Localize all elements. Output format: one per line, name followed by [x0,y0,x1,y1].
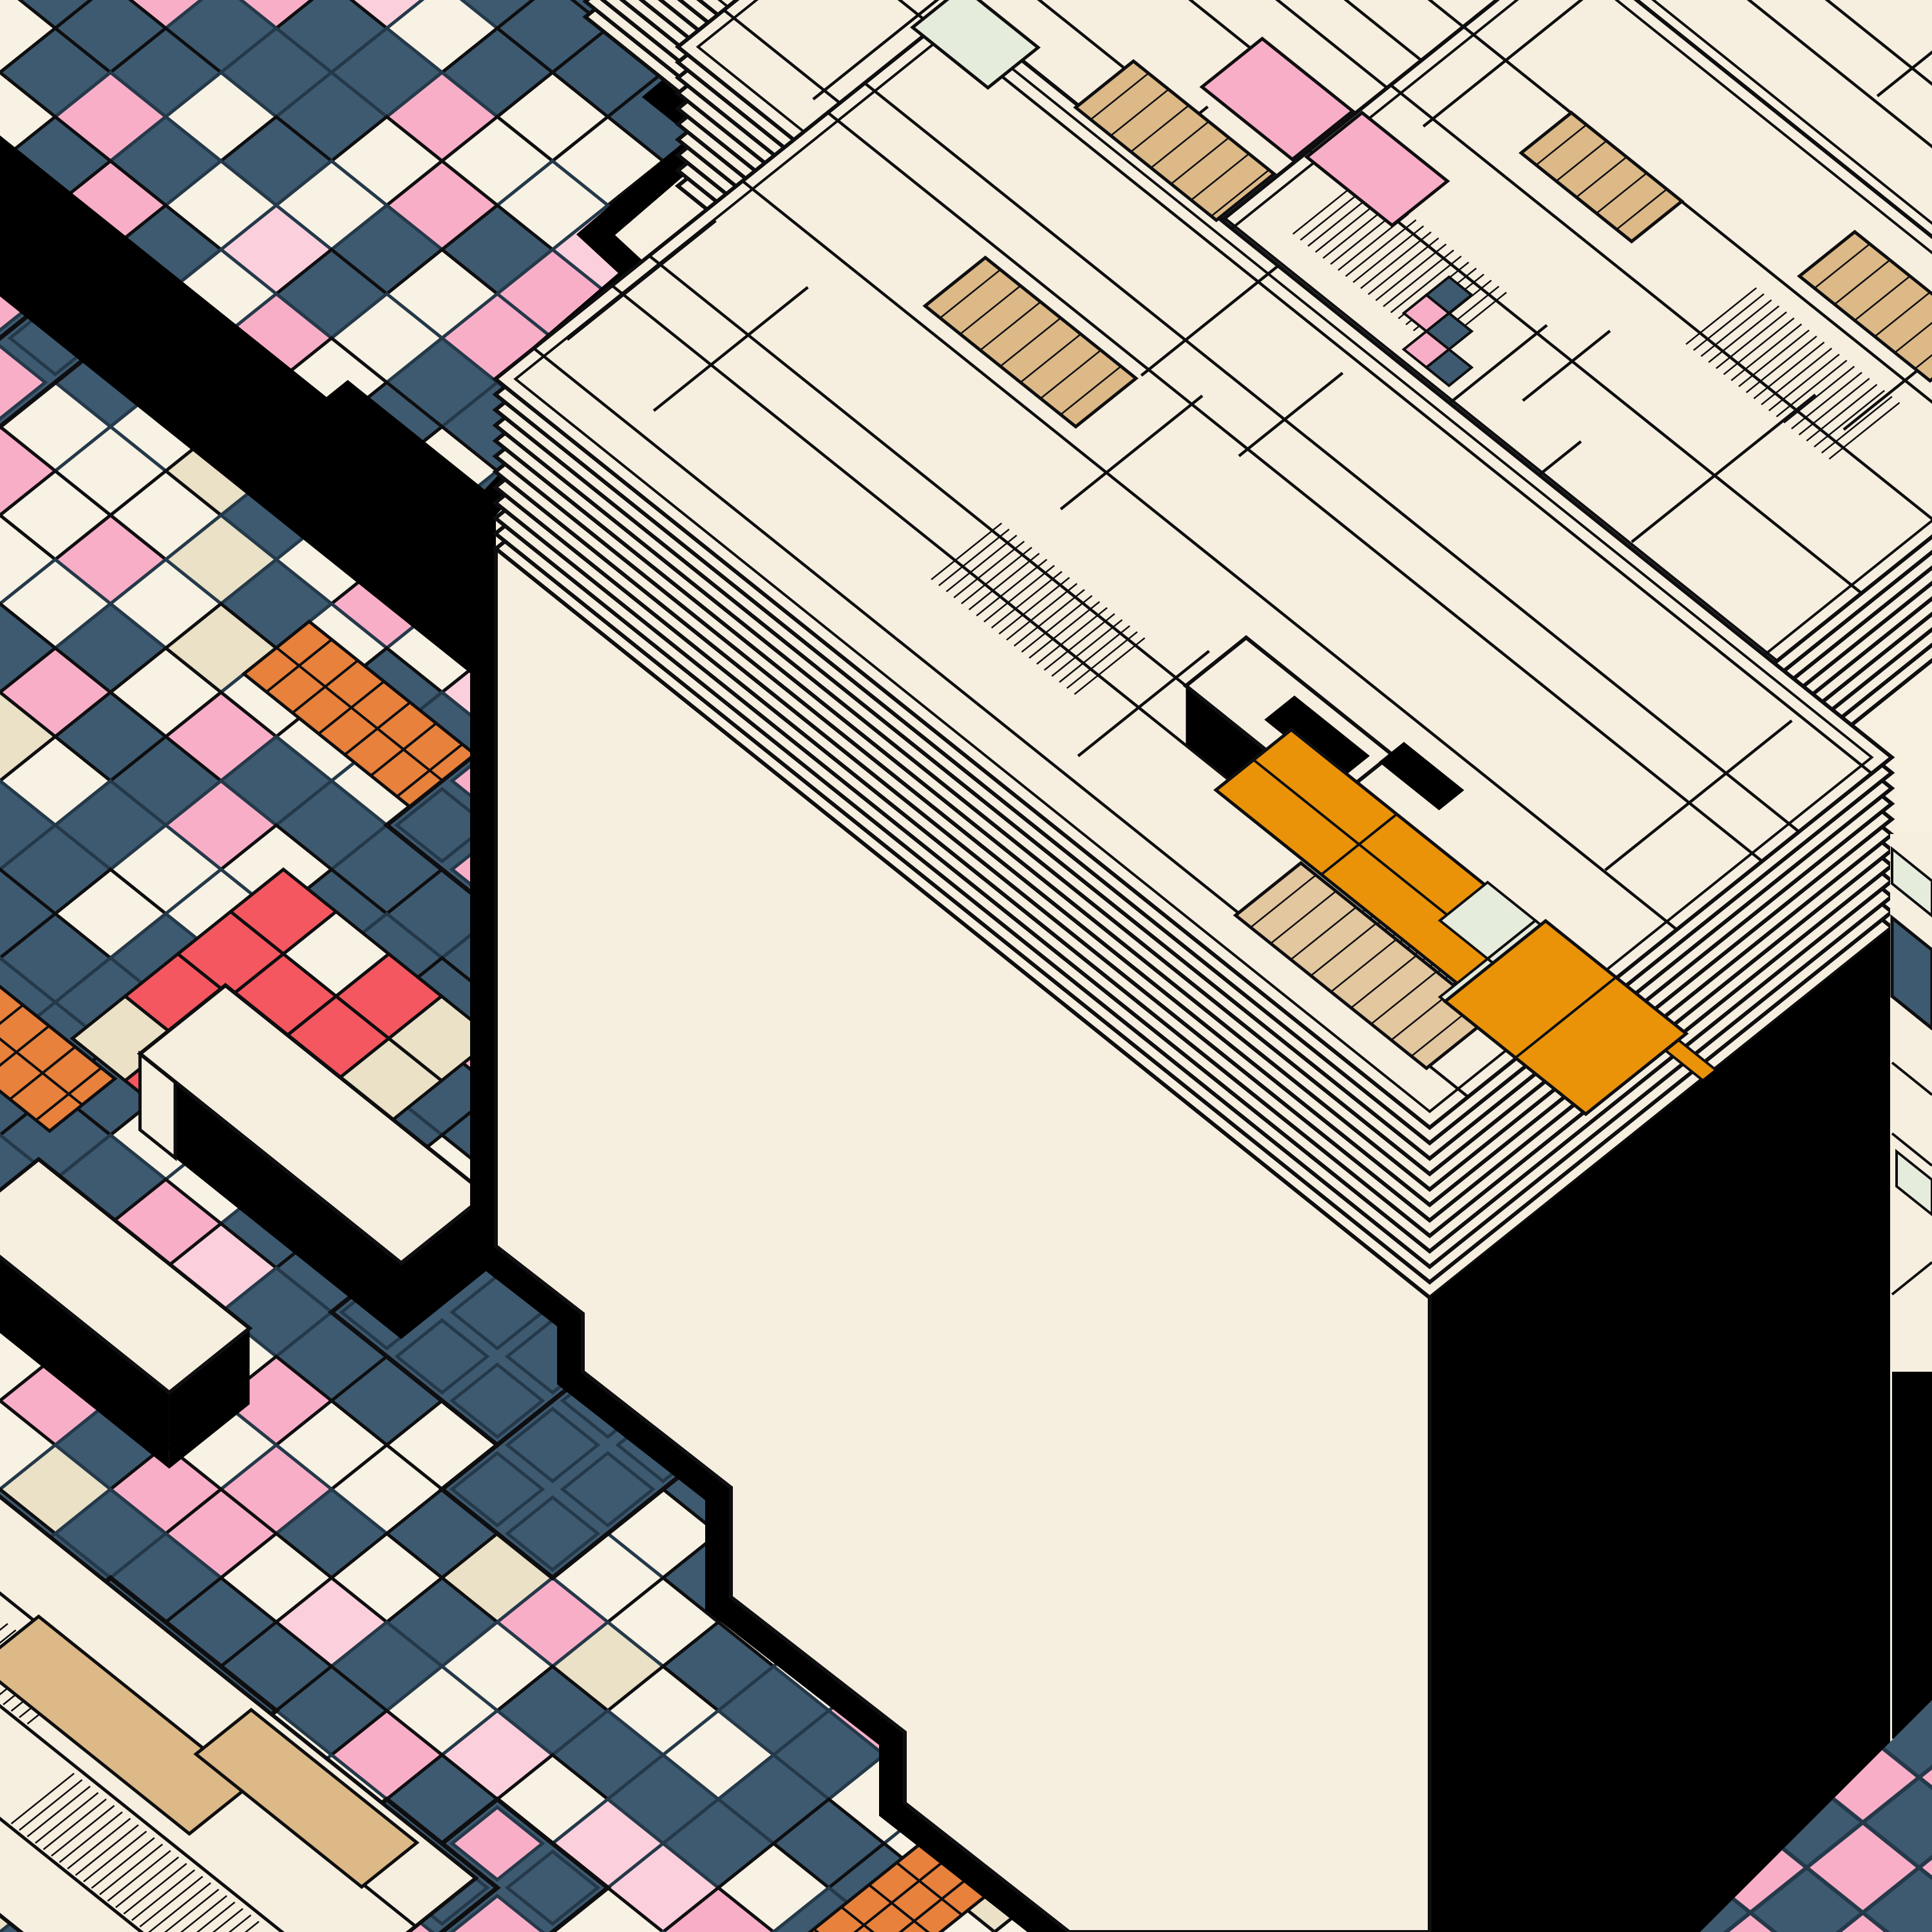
strip-black [1892,1372,1932,1739]
artwork-stage [0,0,1932,1932]
generative-isometric-artwork [0,0,1932,1932]
